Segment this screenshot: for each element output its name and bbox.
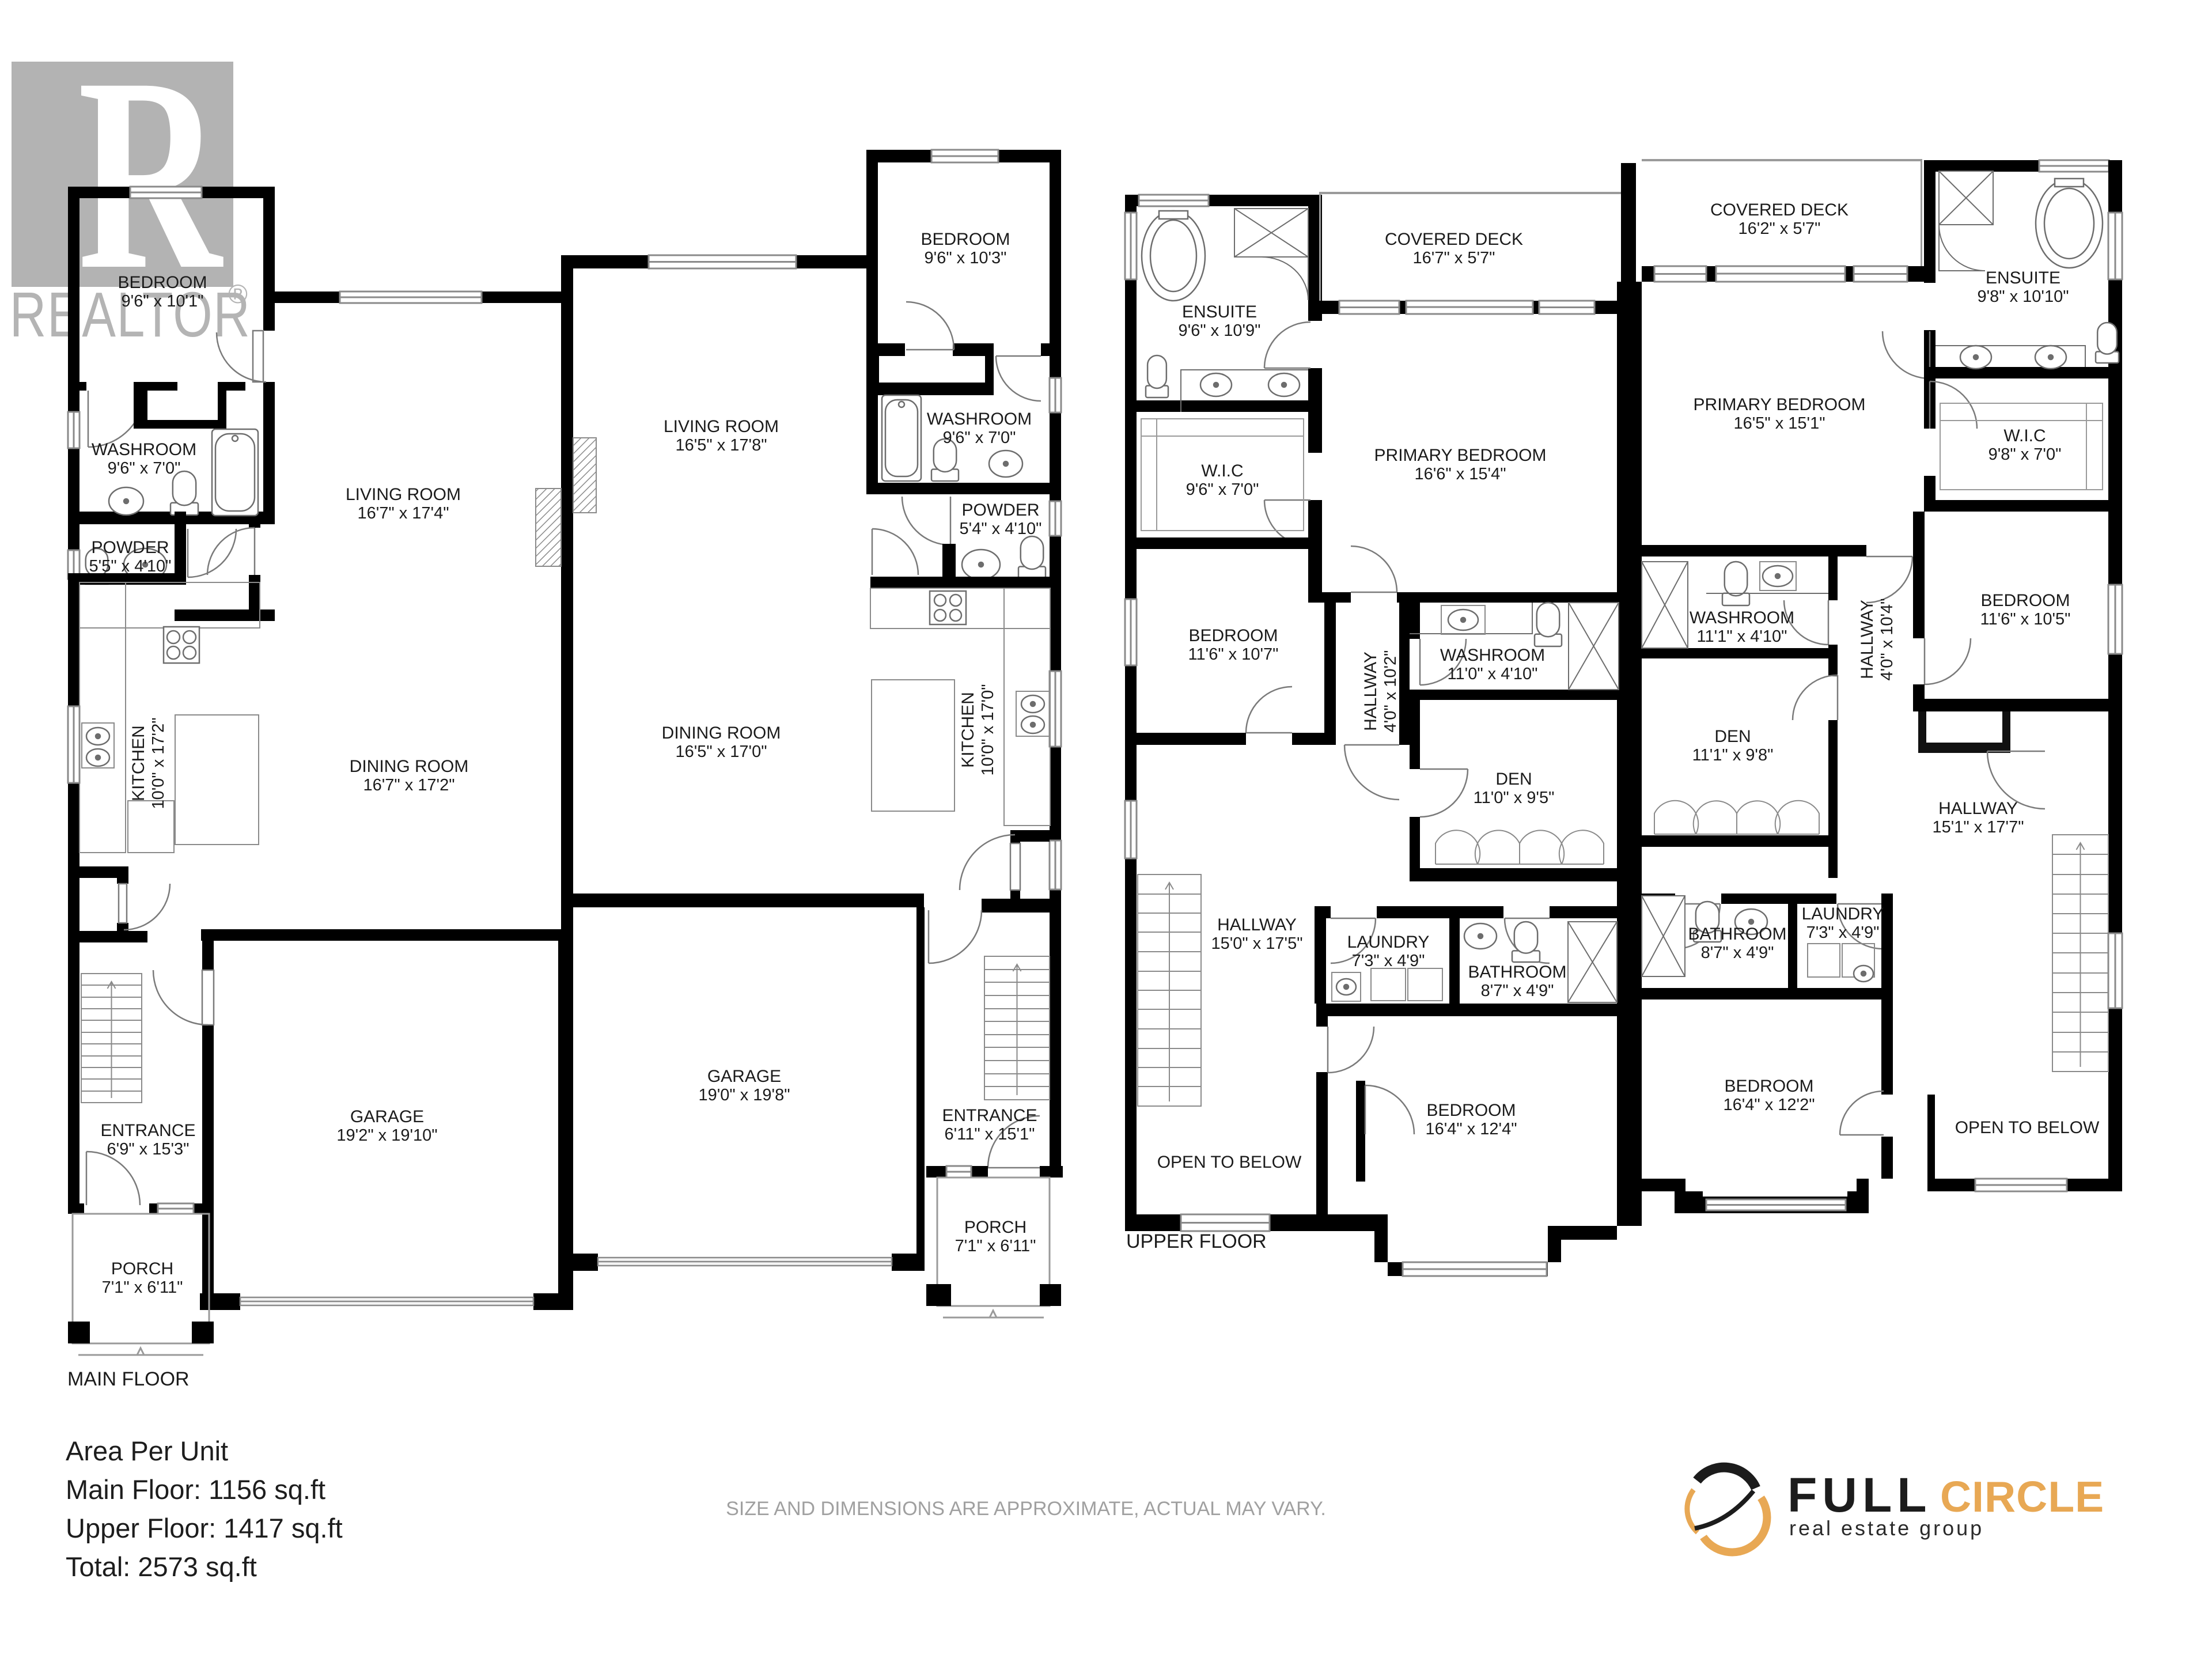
- svg-text:7'3" x 4'9": 7'3" x 4'9": [1806, 923, 1880, 942]
- svg-text:Upper Floor: 1417 sq.ft: Upper Floor: 1417 sq.ft: [66, 1513, 343, 1543]
- svg-text:GARAGE: GARAGE: [707, 1067, 781, 1086]
- svg-text:BEDROOM: BEDROOM: [1426, 1101, 1516, 1120]
- svg-text:16'4" x 12'2": 16'4" x 12'2": [1723, 1096, 1815, 1114]
- svg-text:6'9" x 15'3": 6'9" x 15'3": [107, 1140, 190, 1159]
- svg-text:9'8" x 7'0": 9'8" x 7'0": [1988, 445, 2062, 464]
- svg-text:KITCHEN: KITCHEN: [959, 692, 978, 768]
- svg-text:BEDROOM: BEDROOM: [118, 273, 207, 292]
- svg-text:11'1" x 4'10": 11'1" x 4'10": [1697, 627, 1787, 646]
- svg-text:9'6" x 7'0": 9'6" x 7'0": [943, 429, 1016, 447]
- svg-text:WASHROOM: WASHROOM: [927, 410, 1032, 429]
- svg-text:15'1" x 17'7": 15'1" x 17'7": [1932, 818, 2024, 836]
- svg-text:DINING ROOM: DINING ROOM: [350, 757, 469, 776]
- svg-text:9'8" x 10'10": 9'8" x 10'10": [1977, 287, 2069, 306]
- svg-text:7'1" x 6'11": 7'1" x 6'11": [955, 1237, 1036, 1255]
- svg-text:15'0" x 17'5": 15'0" x 17'5": [1211, 934, 1302, 953]
- svg-text:real estate group: real estate group: [1789, 1516, 1984, 1540]
- svg-text:HALLWAY: HALLWAY: [1361, 652, 1380, 731]
- svg-text:BEDROOM: BEDROOM: [921, 230, 1010, 249]
- svg-text:HALLWAY: HALLWAY: [1858, 600, 1877, 679]
- svg-text:16'7" x 5'7": 16'7" x 5'7": [1413, 249, 1495, 267]
- svg-text:16'5" x 17'0": 16'5" x 17'0": [675, 743, 767, 761]
- svg-text:BEDROOM: BEDROOM: [1188, 626, 1278, 645]
- svg-text:9'6" x 10'3": 9'6" x 10'3": [925, 249, 1007, 267]
- svg-text:LAUNDRY: LAUNDRY: [1802, 904, 1884, 923]
- svg-text:8'7" x 4'9": 8'7" x 4'9": [1481, 982, 1554, 1000]
- svg-text:BATHROOM: BATHROOM: [1468, 963, 1566, 982]
- svg-text:16'2" x 5'7": 16'2" x 5'7": [1738, 219, 1821, 238]
- svg-text:COVERED DECK: COVERED DECK: [1385, 230, 1523, 249]
- svg-text:11'0" x 4'10": 11'0" x 4'10": [1448, 665, 1538, 683]
- svg-text:PORCH: PORCH: [111, 1259, 173, 1278]
- svg-text:GARAGE: GARAGE: [350, 1107, 424, 1126]
- svg-text:ENSUITE: ENSUITE: [1986, 268, 2061, 287]
- svg-text:9'6" x 10'1": 9'6" x 10'1": [122, 292, 204, 311]
- svg-text:POWDER: POWDER: [962, 501, 1040, 520]
- svg-text:19'0" x 19'8": 19'0" x 19'8": [698, 1086, 790, 1104]
- svg-text:16'4" x 12'4": 16'4" x 12'4": [1425, 1120, 1517, 1138]
- svg-text:PRIMARY BEDROOM: PRIMARY BEDROOM: [1374, 446, 1547, 465]
- svg-text:OPEN TO BELOW: OPEN TO BELOW: [1157, 1153, 1302, 1172]
- svg-text:ENTRANCE: ENTRANCE: [100, 1121, 195, 1140]
- svg-text:KITCHEN: KITCHEN: [129, 725, 148, 801]
- svg-text:7'3" x 4'9": 7'3" x 4'9": [1352, 952, 1425, 970]
- svg-text:16'5" x 15'1": 16'5" x 15'1": [1733, 414, 1825, 433]
- svg-text:DINING ROOM: DINING ROOM: [662, 724, 781, 743]
- svg-text:16'7" x 17'4": 16'7" x 17'4": [357, 504, 449, 523]
- svg-text:4'0" x 10'2": 4'0" x 10'2": [1381, 650, 1400, 733]
- svg-text:16'7" x 17'2": 16'7" x 17'2": [363, 776, 454, 794]
- svg-text:LIVING ROOM: LIVING ROOM: [346, 485, 461, 504]
- svg-text:ENTRANCE: ENTRANCE: [942, 1106, 1037, 1125]
- svg-text:11'1" x 9'8": 11'1" x 9'8": [1692, 746, 1774, 764]
- svg-text:OPEN TO BELOW: OPEN TO BELOW: [1955, 1118, 2100, 1137]
- svg-text:BEDROOM: BEDROOM: [1980, 591, 2070, 610]
- svg-text:PRIMARY BEDROOM: PRIMARY BEDROOM: [1694, 395, 1866, 414]
- svg-text:SIZE AND DIMENSIONS ARE APPROX: SIZE AND DIMENSIONS ARE APPROXIMATE, ACT…: [726, 1498, 1326, 1520]
- svg-text:®: ®: [228, 279, 248, 309]
- svg-text:4'0" x 10'4": 4'0" x 10'4": [1878, 599, 1896, 681]
- svg-text:11'6" x 10'7": 11'6" x 10'7": [1188, 645, 1279, 664]
- svg-text:WASHROOM: WASHROOM: [1440, 646, 1545, 665]
- svg-text:8'7" x 4'9": 8'7" x 4'9": [1701, 944, 1774, 962]
- svg-text:LAUNDRY: LAUNDRY: [1347, 933, 1430, 952]
- svg-text:BEDROOM: BEDROOM: [1724, 1077, 1813, 1096]
- svg-text:9'6" x 10'9": 9'6" x 10'9": [1179, 321, 1261, 340]
- svg-text:MAIN FLOOR: MAIN FLOOR: [67, 1368, 190, 1390]
- svg-text:16'5" x 17'8": 16'5" x 17'8": [675, 436, 767, 455]
- svg-text:10'0" x 17'0": 10'0" x 17'0": [979, 684, 997, 775]
- svg-text:10'0" x 17'2": 10'0" x 17'2": [149, 717, 168, 809]
- svg-text:DEN: DEN: [1714, 727, 1751, 746]
- svg-text:W.I.C: W.I.C: [2003, 426, 2046, 445]
- svg-text:WASHROOM: WASHROOM: [1690, 608, 1794, 627]
- svg-text:UPPER FLOOR: UPPER FLOOR: [1126, 1231, 1267, 1252]
- svg-text:5'5" x 4'10": 5'5" x 4'10": [89, 557, 172, 576]
- svg-text:HALLWAY: HALLWAY: [1938, 799, 2018, 818]
- svg-text:W.I.C: W.I.C: [1201, 461, 1243, 480]
- svg-text:POWDER: POWDER: [92, 538, 169, 557]
- svg-text:9'6" x 7'0": 9'6" x 7'0": [1186, 480, 1259, 499]
- svg-text:WASHROOM: WASHROOM: [92, 440, 196, 459]
- svg-text:HALLWAY: HALLWAY: [1217, 915, 1297, 934]
- svg-text:16'6" x 15'4": 16'6" x 15'4": [1414, 465, 1506, 483]
- svg-text:11'6" x 10'5": 11'6" x 10'5": [1980, 610, 2071, 629]
- svg-text:Main Floor: 1156 sq.ft: Main Floor: 1156 sq.ft: [66, 1474, 325, 1505]
- svg-text:19'2" x 19'10": 19'2" x 19'10": [336, 1126, 437, 1145]
- svg-text:Total: 2573 sq.ft: Total: 2573 sq.ft: [66, 1551, 257, 1582]
- svg-text:LIVING ROOM: LIVING ROOM: [664, 417, 779, 436]
- svg-text:CIRCLE: CIRCLE: [1940, 1472, 2104, 1521]
- svg-text:6'11" x 15'1": 6'11" x 15'1": [945, 1125, 1035, 1144]
- svg-text:11'0" x 9'5": 11'0" x 9'5": [1474, 789, 1555, 807]
- svg-text:Area Per Unit: Area Per Unit: [66, 1436, 228, 1466]
- svg-text:DEN: DEN: [1495, 770, 1532, 789]
- svg-text:COVERED DECK: COVERED DECK: [1710, 200, 1849, 219]
- svg-text:5'4" x 4'10": 5'4" x 4'10": [960, 520, 1042, 538]
- svg-text:BATHROOM: BATHROOM: [1688, 925, 1786, 944]
- svg-text:9'6" x 7'0": 9'6" x 7'0": [108, 459, 181, 478]
- svg-text:PORCH: PORCH: [964, 1218, 1027, 1237]
- svg-text:7'1" x 6'11": 7'1" x 6'11": [102, 1278, 183, 1297]
- svg-text:ENSUITE: ENSUITE: [1182, 302, 1257, 321]
- svg-text:FULL: FULL: [1787, 1468, 1932, 1522]
